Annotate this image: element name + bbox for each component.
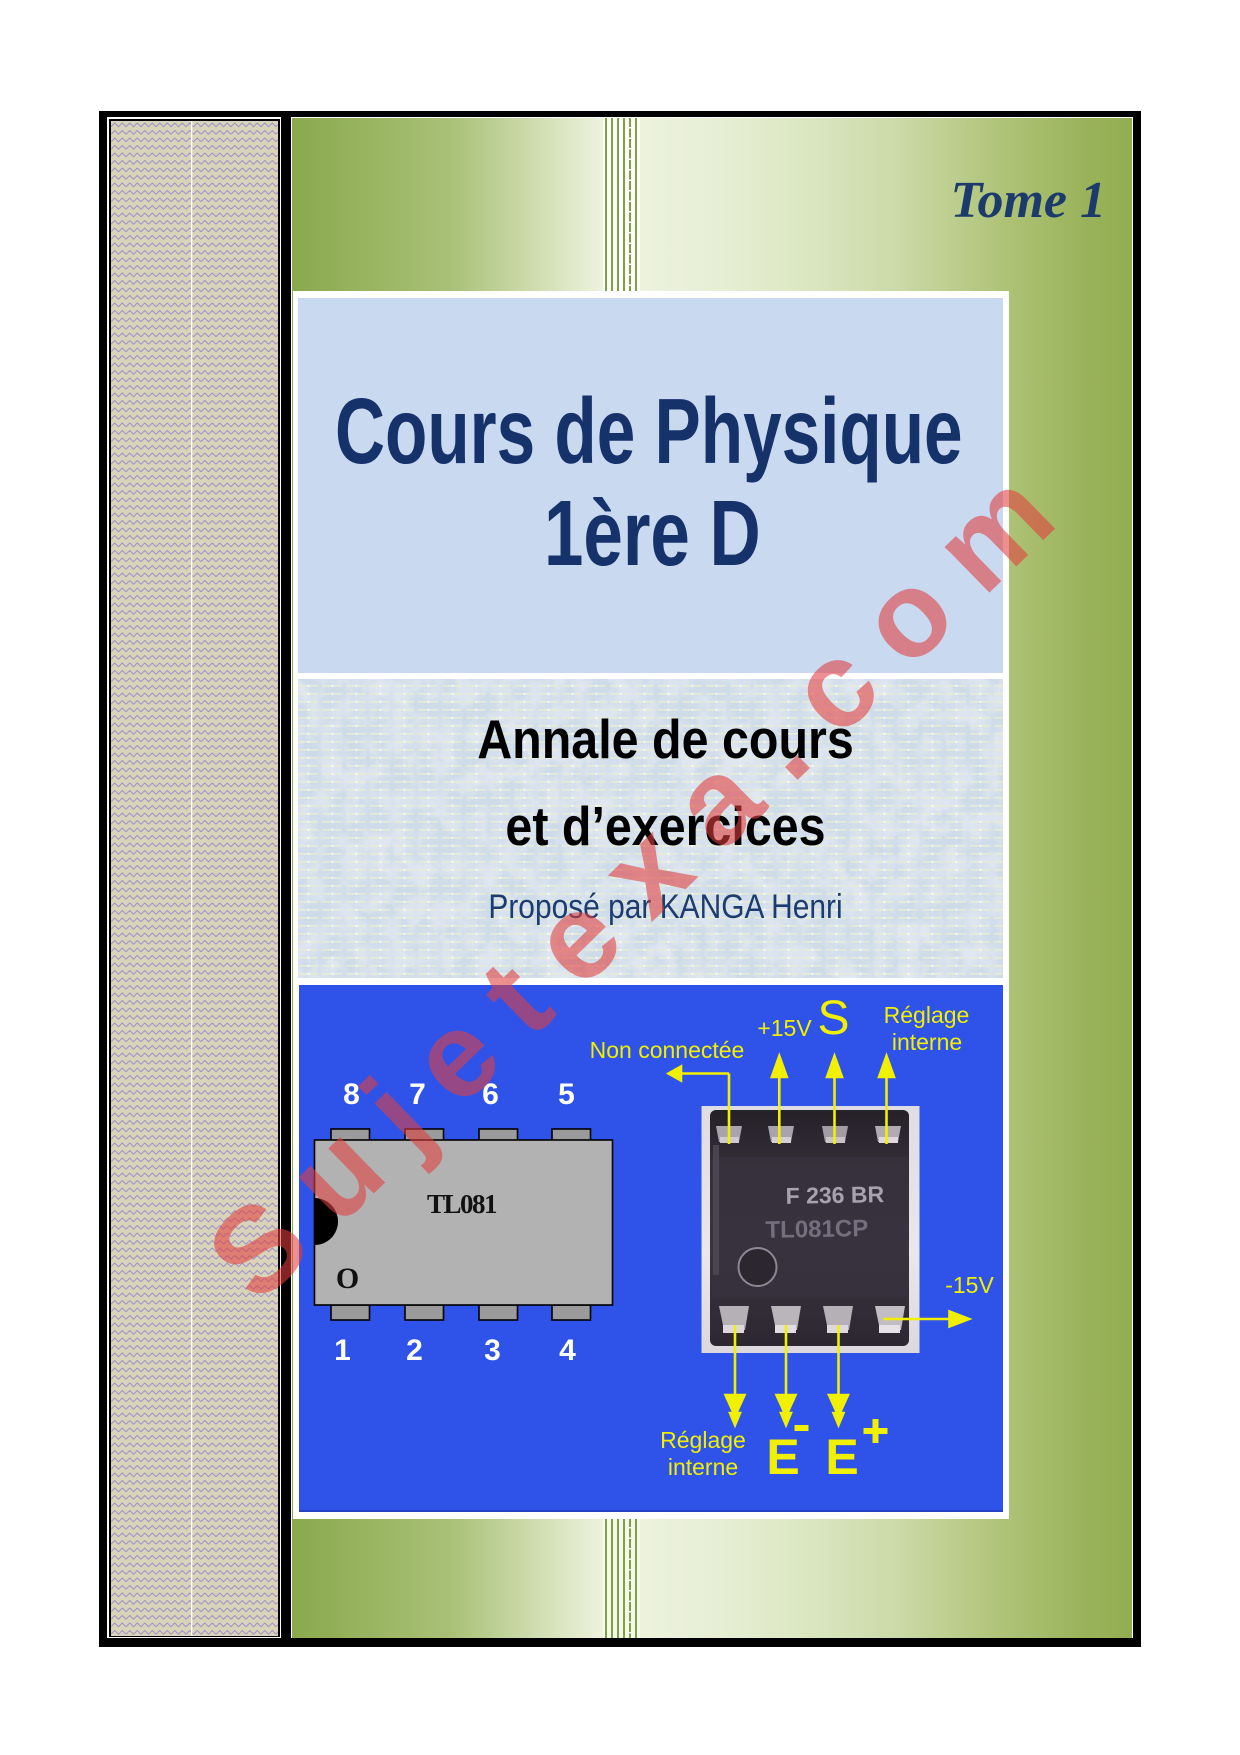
svg-text:TL081CP: TL081CP (765, 1215, 868, 1244)
svg-text:+15V: +15V (757, 1015, 812, 1041)
svg-text:O: O (335, 1262, 358, 1295)
svg-text:3: 3 (484, 1334, 501, 1367)
svg-text:interne: interne (891, 1029, 961, 1055)
svg-text:E: E (825, 1429, 858, 1485)
svg-text:4: 4 (559, 1334, 576, 1367)
svg-text:-15V: -15V (945, 1272, 994, 1298)
svg-text:F 236 BR: F 236 BR (785, 1181, 884, 1209)
svg-text:Non connectée: Non connectée (589, 1037, 744, 1063)
svg-text:S: S (817, 992, 849, 1045)
svg-text:5: 5 (558, 1078, 575, 1111)
svg-text:2: 2 (406, 1334, 423, 1367)
svg-text:1: 1 (334, 1334, 351, 1367)
svg-text:TL081: TL081 (426, 1189, 496, 1219)
svg-text:E: E (766, 1429, 799, 1485)
svg-text:Réglage: Réglage (660, 1427, 746, 1453)
svg-text:Réglage: Réglage (883, 1002, 969, 1028)
svg-text:interne: interne (667, 1454, 737, 1480)
